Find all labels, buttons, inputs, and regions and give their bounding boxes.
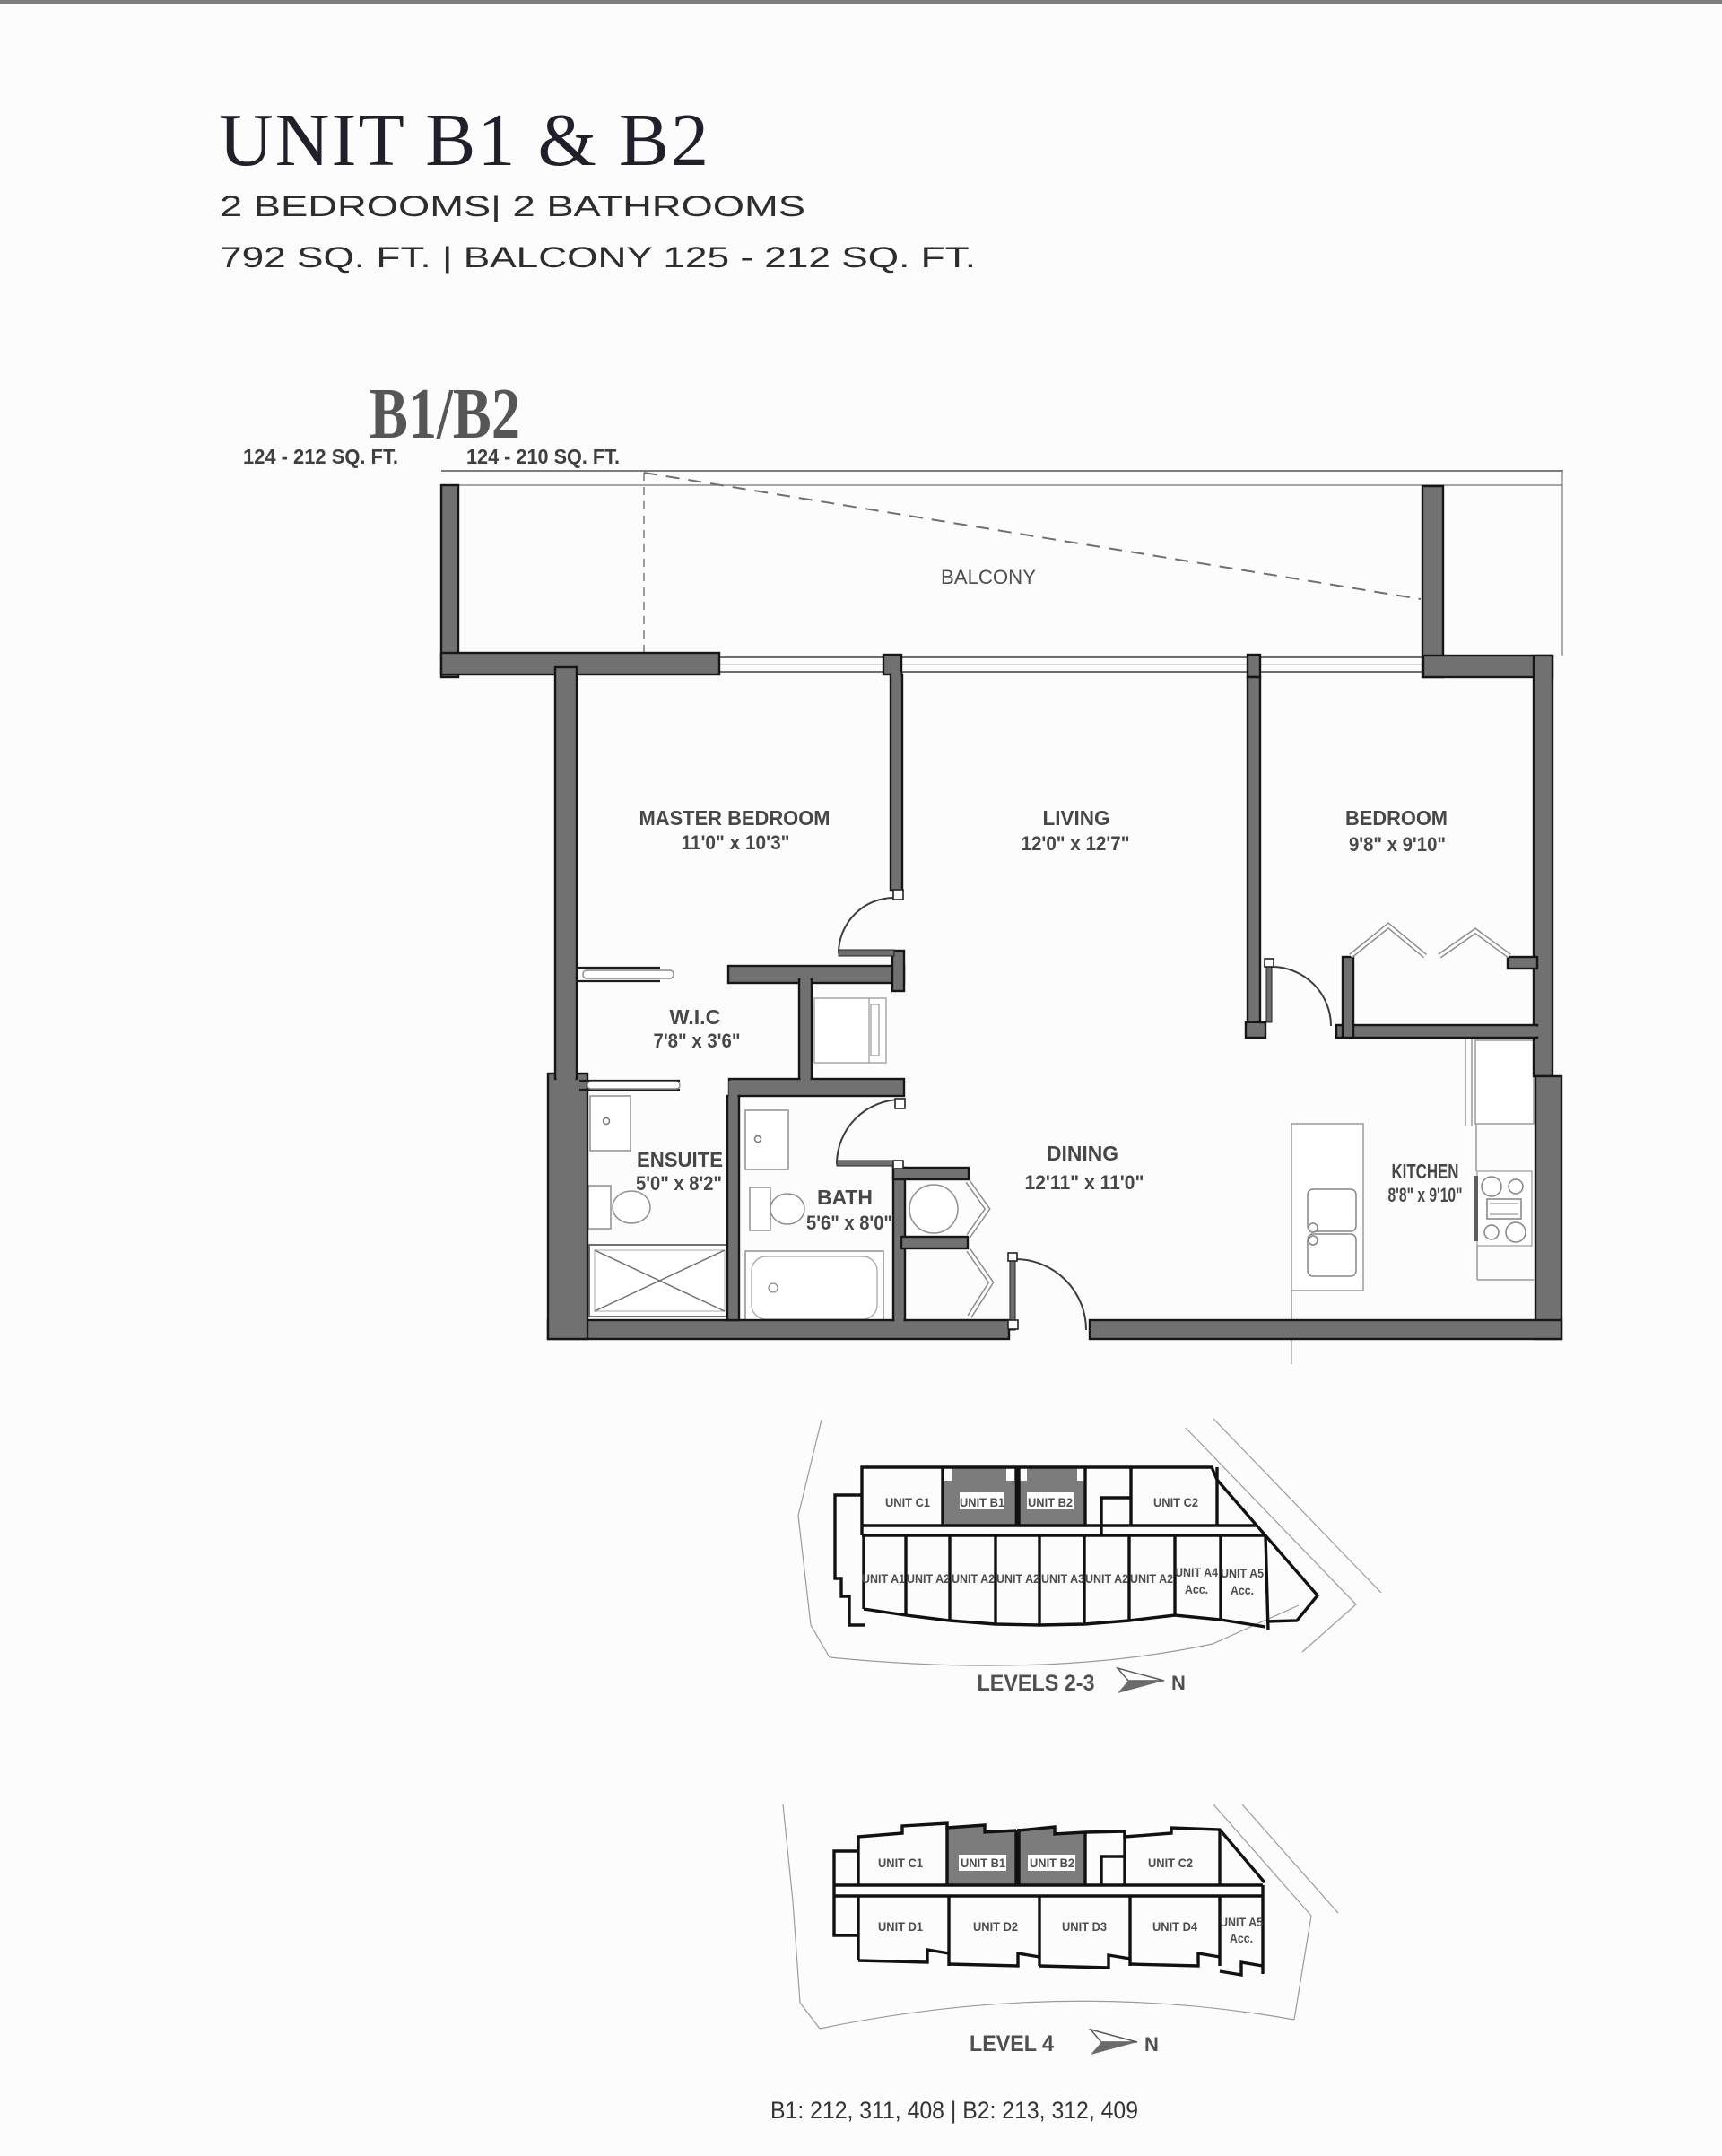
svg-text:UNIT A2: UNIT A2: [907, 1571, 950, 1586]
svg-text:B1/B2: B1/B2: [370, 375, 520, 454]
svg-text:UNIT D3: UNIT D3: [1062, 1919, 1107, 1934]
svg-text:5'6" x 8'0": 5'6" x 8'0": [806, 1212, 892, 1234]
svg-text:UNIT A5: UNIT A5: [1221, 1566, 1264, 1580]
svg-text:UNIT C1: UNIT C1: [878, 1856, 923, 1870]
svg-text:DINING: DINING: [1047, 1142, 1118, 1165]
svg-text:9'8" x 9'10": 9'8" x 9'10": [1349, 833, 1446, 856]
svg-text:BATH: BATH: [817, 1186, 873, 1209]
svg-text:BEDROOM: BEDROOM: [1345, 806, 1448, 830]
svg-text:UNIT C2: UNIT C2: [1148, 1856, 1193, 1870]
svg-text:5'0" x 8'2": 5'0" x 8'2": [636, 1172, 722, 1195]
svg-text:11'0" x 10'3": 11'0" x 10'3": [682, 831, 790, 854]
svg-text:ENSUITE: ENSUITE: [637, 1148, 723, 1171]
svg-text:Acc.: Acc.: [1231, 1583, 1254, 1597]
svg-text:B1: 212, 311, 408 | B2: 213, 3: B1: 212, 311, 408 | B2: 213, 312, 409: [770, 2097, 1138, 2124]
svg-text:12'11" x 11'0": 12'11" x 11'0": [1025, 1171, 1144, 1194]
svg-text:UNIT A2: UNIT A2: [996, 1571, 1039, 1586]
svg-text:UNIT C2: UNIT C2: [1153, 1495, 1198, 1509]
svg-text:LEVEL 4: LEVEL 4: [970, 2031, 1054, 2056]
svg-text:UNIT D4: UNIT D4: [1152, 1919, 1197, 1934]
svg-text:N: N: [1144, 2033, 1159, 2056]
svg-text:UNIT A3: UNIT A3: [1041, 1571, 1084, 1586]
svg-text:UNIT B1 & B2: UNIT B1 & B2: [219, 99, 710, 182]
svg-text:BALCONY: BALCONY: [941, 566, 1036, 588]
svg-text:792 SQ. FT. | BALCONY 125 - 21: 792 SQ. FT. | BALCONY 125 - 212 SQ. FT.: [220, 241, 976, 274]
svg-text:UNIT B2: UNIT B2: [1028, 1495, 1073, 1509]
svg-text:8'8" x 9'10": 8'8" x 9'10": [1388, 1184, 1463, 1206]
svg-text:124 - 212 SQ. FT.: 124 - 212 SQ. FT.: [243, 445, 398, 468]
svg-text:UNIT A2: UNIT A2: [1130, 1571, 1173, 1586]
svg-text:UNIT A4: UNIT A4: [1175, 1565, 1218, 1579]
svg-text:7'8" x 3'6": 7'8" x 3'6": [654, 1030, 741, 1052]
svg-text:UNIT D2: UNIT D2: [973, 1919, 1018, 1934]
svg-text:UNIT B2: UNIT B2: [1030, 1856, 1074, 1870]
svg-text:UNIT A2: UNIT A2: [1085, 1571, 1128, 1586]
svg-text:LEVELS 2-3: LEVELS 2-3: [978, 1671, 1095, 1696]
svg-text:124 - 210 SQ. FT.: 124 - 210 SQ. FT.: [466, 445, 620, 468]
svg-text:UNIT A2: UNIT A2: [952, 1571, 995, 1586]
svg-text:UNIT A5: UNIT A5: [1220, 1915, 1263, 1929]
svg-text:UNIT D1: UNIT D1: [878, 1919, 923, 1934]
svg-text:MASTER BEDROOM: MASTER BEDROOM: [639, 806, 831, 830]
svg-text:W.I.C: W.I.C: [670, 1005, 721, 1029]
svg-text:UNIT C1: UNIT C1: [885, 1495, 930, 1509]
svg-text:12'0" x 12'7": 12'0" x 12'7": [1022, 832, 1130, 855]
svg-text:Acc.: Acc.: [1230, 1931, 1253, 1945]
svg-text:N: N: [1171, 1672, 1186, 1694]
svg-text:UNIT B1: UNIT B1: [961, 1856, 1005, 1870]
svg-text:UNIT B1: UNIT B1: [960, 1495, 1004, 1509]
svg-text:UNIT A1: UNIT A1: [862, 1571, 905, 1586]
svg-text:2 BEDROOMS| 2 BATHROOMS: 2 BEDROOMS| 2 BATHROOMS: [220, 190, 805, 222]
svg-text:LIVING: LIVING: [1043, 806, 1110, 830]
svg-text:KITCHEN: KITCHEN: [1392, 1160, 1459, 1183]
svg-text:Acc.: Acc.: [1185, 1582, 1208, 1596]
